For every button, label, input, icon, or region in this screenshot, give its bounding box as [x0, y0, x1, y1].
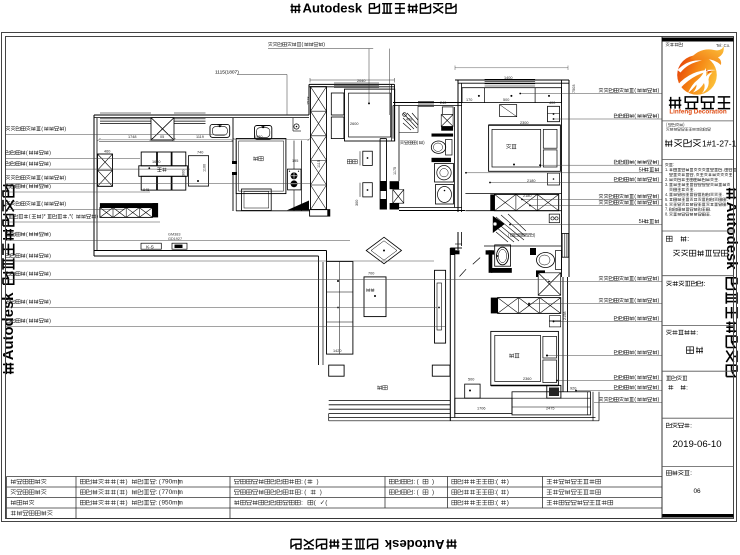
svg-text:.: .: [718, 177, 719, 182]
svg-text:195: 195: [292, 159, 298, 163]
svg-text:): ): [178, 489, 180, 496]
svg-text::: :: [301, 500, 303, 507]
svg-text:(: (: [634, 194, 636, 200]
svg-text:(: (: [26, 161, 28, 167]
svg-text:): ): [49, 253, 51, 259]
svg-text::: :: [673, 162, 674, 167]
svg-text:K-S: K-S: [146, 244, 154, 249]
svg-text:): ): [49, 161, 51, 167]
svg-text:2040: 2040: [357, 79, 365, 83]
svg-text:(: (: [41, 126, 43, 132]
svg-text:): ): [658, 298, 660, 304]
svg-text:): ): [126, 500, 128, 507]
svg-text::: :: [690, 423, 692, 430]
svg-text:): ): [658, 194, 660, 200]
svg-text::: :: [156, 489, 158, 496]
svg-text:): ): [658, 177, 660, 183]
svg-text:(: (: [634, 375, 636, 381]
svg-text::: :: [686, 384, 688, 391]
svg-text:.: .: [723, 192, 724, 197]
svg-text:(: (: [26, 299, 28, 305]
svg-text:): ): [658, 160, 660, 166]
svg-text:06: 06: [693, 488, 701, 495]
svg-text:,: ,: [723, 167, 724, 172]
svg-text:2158: 2158: [563, 312, 567, 320]
svg-text:1115: 1115: [317, 160, 321, 168]
svg-text:Autodesk: Autodesk: [1, 292, 17, 361]
svg-text:): ): [49, 318, 51, 324]
svg-text:): ): [178, 479, 180, 486]
svg-text:05: 05: [160, 135, 164, 139]
svg-text:(: (: [26, 318, 28, 324]
svg-text:): ): [96, 214, 98, 220]
svg-text:1175: 1175: [393, 167, 397, 175]
svg-text:1115(1807): 1115(1807): [215, 70, 239, 76]
svg-text:): ): [64, 126, 66, 132]
svg-text:(: (: [41, 201, 43, 207]
svg-text:): ): [49, 150, 51, 156]
svg-text:): ): [658, 385, 660, 391]
svg-text:1400: 1400: [504, 76, 512, 80]
svg-text:(: (: [26, 253, 28, 259]
svg-text:(: (: [634, 200, 636, 206]
svg-text:): ): [323, 42, 325, 48]
svg-text::: :: [156, 500, 158, 507]
svg-text:7503: 7503: [572, 85, 576, 93]
svg-text::: :: [703, 281, 705, 288]
svg-text::: :: [413, 479, 415, 486]
svg-text:1706: 1706: [477, 407, 485, 411]
svg-text:): ): [49, 271, 51, 277]
svg-text:): ): [432, 489, 434, 496]
svg-text:): ): [49, 184, 51, 190]
svg-text:(: (: [634, 385, 636, 391]
svg-text:900: 900: [182, 170, 186, 176]
svg-text:3.: 3.: [665, 182, 668, 187]
svg-text:): ): [658, 375, 660, 381]
svg-text:): ): [64, 201, 66, 207]
svg-text::: :: [301, 479, 303, 486]
svg-text:400: 400: [549, 101, 555, 105]
svg-text:): ): [126, 479, 128, 486]
svg-text:,*(: ,*(: [68, 214, 74, 220]
svg-text:): ): [658, 276, 660, 282]
svg-text:1480: 1480: [254, 135, 262, 139]
svg-text:.: .: [694, 187, 695, 192]
svg-text:(: (: [634, 177, 636, 183]
svg-text:,: ,: [694, 172, 695, 177]
svg-text:.: .: [733, 172, 734, 177]
svg-text::: :: [696, 330, 698, 337]
svg-text:240: 240: [440, 101, 446, 105]
svg-text:845: 845: [143, 188, 149, 192]
svg-text:8.: 8.: [665, 212, 668, 217]
svg-text:1119: 1119: [196, 135, 204, 139]
svg-text:1#1-27-1: 1#1-27-1: [702, 139, 737, 149]
svg-text:500: 500: [503, 98, 509, 102]
svg-text:(: (: [634, 160, 636, 166]
svg-text:(: (: [41, 175, 43, 181]
svg-text:1100: 1100: [203, 164, 207, 172]
svg-text:2180: 2180: [523, 194, 531, 198]
svg-text:170: 170: [466, 98, 472, 102]
svg-text:(: (: [26, 271, 28, 277]
svg-text:(: (: [634, 350, 636, 356]
svg-text:(: (: [302, 42, 304, 48]
svg-text:(: (: [634, 276, 636, 282]
svg-text:): ): [64, 175, 66, 181]
svg-text:): ): [317, 479, 319, 486]
svg-text:1748: 1748: [128, 135, 136, 139]
svg-text:700: 700: [368, 272, 374, 276]
svg-text:): ): [432, 479, 434, 486]
svg-text:(: (: [634, 88, 636, 94]
svg-text:1.: 1.: [665, 167, 668, 172]
svg-text:): ): [658, 316, 660, 322]
svg-text:): ): [658, 114, 660, 120]
svg-text:(: (: [634, 298, 636, 304]
svg-text:(: (: [634, 114, 636, 120]
svg-text:2475: 2475: [546, 407, 554, 411]
svg-text::: :: [156, 479, 158, 486]
svg-text::: :: [687, 234, 689, 243]
svg-text:): ): [658, 88, 660, 94]
svg-text:.: .: [727, 202, 728, 207]
svg-text:): ): [178, 500, 180, 507]
svg-text:2600: 2600: [350, 122, 358, 126]
svg-text:2300: 2300: [520, 121, 528, 125]
svg-text:): ): [320, 489, 322, 496]
svg-text:460: 460: [104, 150, 110, 154]
svg-text:(: (: [29, 214, 31, 220]
svg-text:(: (: [634, 316, 636, 322]
svg-text::: :: [690, 470, 692, 477]
svg-text:(: (: [26, 184, 28, 190]
svg-text::: :: [413, 489, 415, 496]
svg-text::: :: [301, 489, 303, 496]
svg-text:1620: 1620: [152, 160, 160, 164]
svg-text:): ): [507, 479, 509, 486]
svg-text:(: (: [26, 232, 28, 238]
svg-text:): ): [126, 489, 128, 496]
svg-text:2019-06-10: 2019-06-10: [672, 439, 721, 450]
svg-text:Tel: Co.: Tel: Co.: [716, 43, 730, 48]
svg-text:): ): [658, 350, 660, 356]
svg-text:1420: 1420: [333, 349, 341, 353]
svg-text:500: 500: [468, 378, 474, 382]
svg-text:): ): [507, 500, 509, 507]
svg-text:.: .: [710, 212, 711, 217]
svg-text:): ): [49, 299, 51, 305]
svg-text:Autodesk: Autodesk: [303, 1, 363, 16]
svg-text:GM383: GM383: [168, 233, 180, 237]
svg-text:(: (: [634, 397, 636, 403]
svg-text:): ): [507, 489, 509, 496]
svg-text:): ): [49, 232, 51, 238]
svg-text:Linfeng Decoration: Linfeng Decoration: [669, 109, 727, 116]
svg-text:300: 300: [355, 200, 359, 206]
svg-text:438: 438: [406, 118, 412, 122]
svg-text:7528: 7528: [307, 97, 311, 105]
svg-text:(: (: [26, 150, 28, 156]
svg-text:): ): [658, 200, 660, 206]
svg-text:Autodesk: Autodesk: [384, 537, 444, 552]
svg-text:740: 740: [197, 151, 203, 155]
svg-text:): ): [658, 397, 660, 403]
svg-text:2360: 2360: [523, 377, 531, 381]
